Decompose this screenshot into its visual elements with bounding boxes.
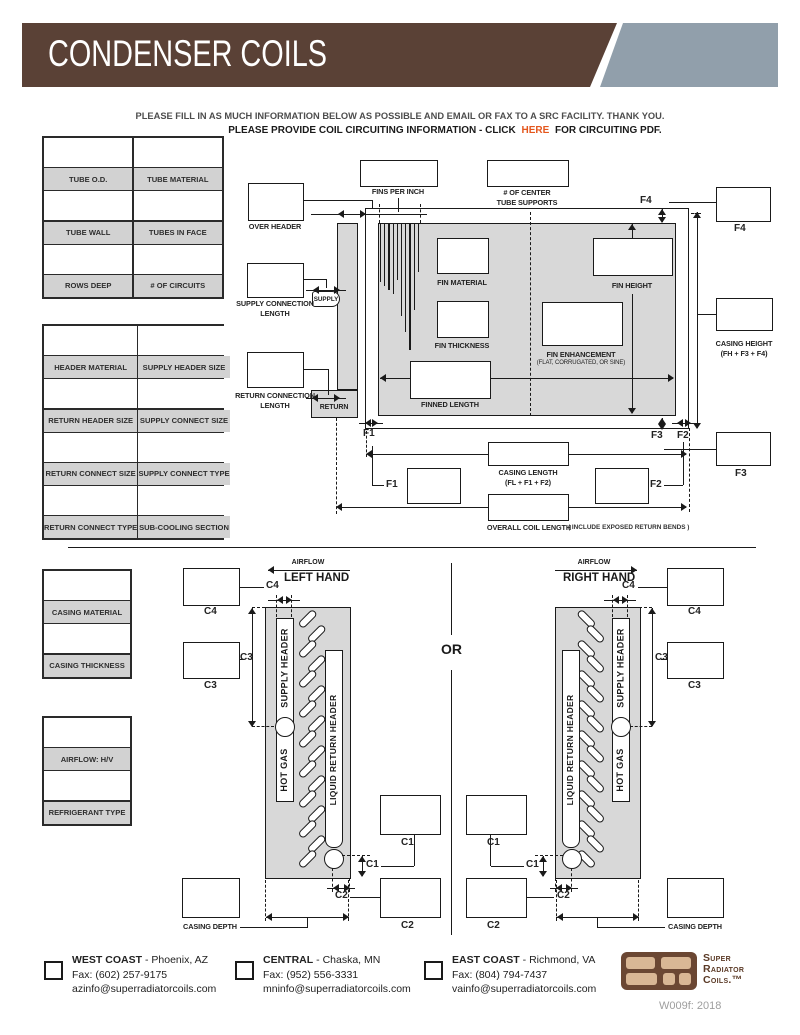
input-casing-material[interactable] bbox=[44, 571, 130, 600]
west-coast-region: WEST COAST bbox=[72, 954, 142, 966]
document-code: W009f: 2018 bbox=[659, 1000, 721, 1012]
input-right-c2[interactable] bbox=[466, 878, 527, 918]
fin-enhancement-sub-label: (FLAT, CORRUGATED, OR SINE) bbox=[537, 360, 625, 366]
tube-mark-icon bbox=[297, 819, 317, 839]
input-fin-enhancement[interactable] bbox=[542, 302, 623, 346]
input-right-c4[interactable] bbox=[667, 568, 724, 606]
input-casing-height[interactable] bbox=[716, 298, 773, 331]
intro-line: PLEASE FILL IN AS MUCH INFORMATION BELOW… bbox=[0, 111, 800, 121]
central-location: CENTRAL- Chaska, MN Fax: (952) 556-3331 … bbox=[263, 953, 411, 997]
center-supports-label-2: TUBE SUPPORTS bbox=[497, 198, 558, 207]
fin-line bbox=[393, 224, 394, 294]
label-return-header-size: RETURN HEADER SIZE bbox=[44, 410, 137, 432]
tube-mark-icon bbox=[585, 684, 605, 704]
f2-dim-label: F2 bbox=[677, 430, 689, 441]
label-return-connect-type: RETURN CONNECT TYPE bbox=[44, 516, 137, 538]
input-tube-material[interactable] bbox=[134, 138, 222, 167]
label-tube-wall: TUBE WALL bbox=[44, 222, 132, 244]
tube-mark-icon bbox=[297, 699, 317, 719]
fin-line bbox=[414, 224, 415, 310]
input-right-c3[interactable] bbox=[667, 642, 724, 679]
casing-height-label-1: CASING HEIGHT bbox=[716, 339, 773, 348]
left-c2-box-label: C2 bbox=[401, 920, 414, 931]
input-supply-connect-type[interactable] bbox=[138, 433, 229, 462]
supply-tag-label: SUPPLY bbox=[314, 296, 339, 303]
label-casing-material: CASING MATERIAL bbox=[44, 601, 130, 623]
input-refrigerant-type[interactable] bbox=[44, 771, 130, 800]
right-c3-dim-label: C3 bbox=[655, 652, 668, 663]
tube-mark-icon bbox=[585, 804, 605, 824]
right-c4-box-label: C4 bbox=[688, 606, 701, 617]
right-c4-dim-label: C4 bbox=[622, 580, 635, 591]
input-f4[interactable] bbox=[716, 187, 771, 222]
input-fin-material[interactable] bbox=[437, 238, 489, 274]
fin-height-label: FIN HEIGHT bbox=[612, 281, 652, 290]
label-sub-cooling-section: SUB-COOLING SECTION bbox=[138, 516, 229, 538]
finned-length-label: FINNED LENGTH bbox=[421, 400, 479, 409]
f2-box-label: F2 bbox=[650, 479, 662, 490]
fin-line bbox=[380, 224, 381, 282]
banner-accent-shape bbox=[600, 23, 778, 87]
right-supply-header-text: SUPPLY HEADER bbox=[616, 608, 626, 729]
central-region: CENTRAL bbox=[263, 954, 313, 966]
input-airflow-hv[interactable] bbox=[44, 718, 130, 747]
label-supply-connect-size: SUPPLY CONNECT SIZE bbox=[138, 410, 229, 432]
fin-line bbox=[397, 224, 398, 280]
input-casing-thickness[interactable] bbox=[44, 624, 130, 653]
left-liquid-return-text: LIQUID RETURN HEADER bbox=[328, 670, 338, 830]
input-casing-length[interactable] bbox=[488, 442, 569, 466]
right-casing-depth-label: CASING DEPTH bbox=[668, 922, 722, 931]
fin-thickness-label: FIN THICKNESS bbox=[435, 341, 490, 350]
right-tube-pattern bbox=[575, 615, 609, 877]
right-c3-box-label: C3 bbox=[688, 680, 701, 691]
left-c1-dim-label: C1 bbox=[366, 859, 379, 870]
central-city: - Chaska, MN bbox=[316, 954, 380, 966]
input-left-casing-depth[interactable] bbox=[182, 878, 240, 918]
input-fins-per-inch[interactable] bbox=[360, 160, 438, 187]
right-c1-box-label: C1 bbox=[487, 837, 500, 848]
fin-line bbox=[388, 224, 389, 290]
fin-line bbox=[384, 224, 385, 286]
input-header-material[interactable] bbox=[44, 326, 137, 355]
input-right-casing-depth[interactable] bbox=[667, 878, 724, 918]
left-return-connection-icon bbox=[324, 849, 344, 869]
west-coast-location: WEST COAST- Phoenix, AZ Fax: (602) 257-9… bbox=[72, 953, 216, 997]
label-airflow-hv: AIRFLOW: H/V bbox=[44, 748, 130, 770]
instruction-prefix: PLEASE PROVIDE COIL CIRCUITING INFORMATI… bbox=[228, 125, 515, 136]
label-num-circuits: # OF CIRCUITS bbox=[134, 275, 222, 297]
input-supply-connection-length[interactable] bbox=[247, 263, 304, 298]
input-fin-thickness[interactable] bbox=[437, 301, 489, 338]
input-fin-height[interactable] bbox=[593, 238, 673, 276]
header-strip bbox=[337, 223, 358, 390]
input-supply-header-size[interactable] bbox=[138, 326, 229, 355]
return-tag-label: RETURN bbox=[320, 404, 349, 411]
label-header-material: HEADER MATERIAL bbox=[44, 356, 137, 378]
input-return-connection-length[interactable] bbox=[247, 352, 304, 388]
input-tubes-in-face[interactable] bbox=[134, 191, 222, 220]
tube-mark-icon bbox=[585, 714, 605, 734]
page-title: CONDENSER COILS bbox=[48, 23, 327, 85]
tube-mark-icon bbox=[297, 759, 317, 779]
east-coast-region: EAST COAST bbox=[452, 954, 520, 966]
center-supports-label-1: # OF CENTER bbox=[503, 188, 550, 197]
tube-mark-icon bbox=[585, 774, 605, 794]
input-left-c4[interactable] bbox=[183, 568, 240, 606]
east-coast-checkbox[interactable] bbox=[424, 961, 443, 980]
input-tube-od[interactable] bbox=[44, 138, 132, 167]
left-c3-box-label: C3 bbox=[204, 680, 217, 691]
left-c2-dim-label: C2 bbox=[335, 890, 348, 901]
west-coast-city: - Phoenix, AZ bbox=[145, 954, 208, 966]
input-return-connect-type[interactable] bbox=[44, 486, 137, 515]
fin-line bbox=[405, 224, 406, 332]
fin-enhancement-label: FIN ENHANCEMENT bbox=[546, 350, 615, 359]
tube-mark-icon bbox=[585, 624, 605, 644]
left-c4-dim-label: C4 bbox=[266, 580, 279, 591]
over-header-label: OVER HEADER bbox=[249, 222, 301, 231]
casing-length-label-1: CASING LENGTH bbox=[498, 468, 557, 477]
right-c1-dim-label: C1 bbox=[526, 859, 539, 870]
tube-mark-icon bbox=[297, 789, 317, 809]
input-left-c3[interactable] bbox=[183, 642, 240, 679]
tube-mark-icon bbox=[297, 669, 317, 689]
casing-height-label-2: (FH + F3 + F4) bbox=[721, 349, 768, 358]
instruction-suffix: FOR CIRCUITING PDF. bbox=[555, 125, 662, 136]
input-right-c1[interactable] bbox=[466, 795, 527, 835]
east-coast-fax: Fax: (804) 794-7437 bbox=[452, 968, 596, 983]
circuiting-pdf-link[interactable]: HERE bbox=[521, 125, 549, 136]
airflow-table: AIRFLOW: H/V REFRIGERANT TYPE bbox=[42, 716, 132, 826]
input-finned-length[interactable] bbox=[410, 361, 491, 399]
west-coast-email[interactable]: azinfo@superradiatorcoils.com bbox=[72, 982, 216, 997]
left-hand-label: LEFT HAND bbox=[284, 572, 349, 584]
tube-mark-icon bbox=[585, 654, 605, 674]
right-liquid-return-text: LIQUID RETURN HEADER bbox=[565, 670, 575, 830]
east-coast-location: EAST COAST- Richmond, VA Fax: (804) 794-… bbox=[452, 953, 596, 997]
east-coast-city: - Richmond, VA bbox=[523, 954, 596, 966]
input-return-header-size[interactable] bbox=[44, 379, 137, 408]
central-fax: Fax: (952) 556-3331 bbox=[263, 968, 411, 983]
input-tube-wall[interactable] bbox=[44, 191, 132, 220]
tube-mark-icon bbox=[297, 729, 317, 749]
input-overall-coil-length[interactable] bbox=[488, 494, 569, 521]
input-f3[interactable] bbox=[716, 432, 771, 466]
label-rows-deep: ROWS DEEP bbox=[44, 275, 132, 297]
logo-wordmark: Super Radiator Coils.™ bbox=[703, 953, 744, 986]
input-left-c2[interactable] bbox=[380, 878, 441, 918]
east-coast-email[interactable]: vainfo@superradiatorcoils.com bbox=[452, 982, 596, 997]
label-refrigerant-type: REFRIGERANT TYPE bbox=[44, 802, 130, 824]
input-supply-connect-size[interactable] bbox=[138, 379, 229, 408]
f4-dim-label: F4 bbox=[640, 195, 652, 206]
logo-word-coils: Coils.™ bbox=[703, 975, 744, 986]
label-casing-thickness: CASING THICKNESS bbox=[44, 655, 130, 677]
tube-mark-icon bbox=[585, 744, 605, 764]
overall-coil-length-label: OVERALL COIL LENGTH bbox=[487, 523, 571, 532]
right-c2-box-label: C2 bbox=[487, 920, 500, 931]
fin-line bbox=[418, 224, 419, 272]
tube-mark-icon bbox=[297, 639, 317, 659]
tube-mark-icon bbox=[585, 834, 605, 854]
condenser-coils-form: CONDENSER COILS PLEASE FILL IN AS MUCH I… bbox=[0, 0, 800, 1035]
f1-dim-label: F1 bbox=[363, 428, 375, 439]
fins-per-inch-label: FINS PER INCH bbox=[372, 187, 424, 196]
input-center-tube-supports[interactable] bbox=[487, 160, 569, 187]
label-tubes-in-face: TUBES IN FACE bbox=[134, 222, 222, 244]
left-c1-box-label: C1 bbox=[401, 837, 414, 848]
title-banner: CONDENSER COILS bbox=[22, 23, 617, 87]
casing-table: CASING MATERIAL CASING THICKNESS bbox=[42, 569, 132, 679]
airflow-label-left: AIRFLOW bbox=[292, 559, 325, 566]
west-coast-fax: Fax: (602) 257-9175 bbox=[72, 968, 216, 983]
section-divider bbox=[68, 547, 756, 548]
left-casing-depth-label: CASING DEPTH bbox=[183, 922, 237, 931]
label-supply-connect-type: SUPPLY CONNECT TYPE bbox=[138, 463, 229, 485]
left-c4-box-label: C4 bbox=[204, 606, 217, 617]
f1-box-label: F1 bbox=[386, 479, 398, 490]
input-return-connect-size[interactable] bbox=[44, 433, 137, 462]
supply-connection-label-2: LENGTH bbox=[260, 309, 289, 318]
right-return-connection-icon bbox=[562, 849, 582, 869]
right-hot-gas-text: HOT GAS bbox=[615, 740, 625, 800]
or-divider-bottom bbox=[451, 670, 452, 935]
f4-box-label: F4 bbox=[734, 223, 746, 234]
label-supply-header-size: SUPPLY HEADER SIZE bbox=[138, 356, 229, 378]
label-return-connect-size: RETURN CONNECT SIZE bbox=[44, 463, 137, 485]
casing-length-label-2: (FL + F1 + F2) bbox=[505, 478, 551, 487]
input-num-circuits[interactable] bbox=[134, 245, 222, 274]
left-supply-header-text: SUPPLY HEADER bbox=[280, 608, 290, 729]
fin-line bbox=[401, 224, 402, 316]
supply-connection-label-1: SUPPLY CONNECTION bbox=[236, 299, 314, 308]
fin-material-label: FIN MATERIAL bbox=[437, 278, 487, 287]
airflow-label-right: AIRFLOW bbox=[578, 559, 611, 566]
input-left-c1[interactable] bbox=[380, 795, 441, 835]
input-sub-cooling-section[interactable] bbox=[138, 486, 229, 515]
return-connection-label-2: LENGTH bbox=[260, 401, 289, 410]
west-coast-checkbox[interactable] bbox=[44, 961, 63, 980]
input-f2[interactable] bbox=[595, 468, 649, 504]
super-radiator-coils-logo-icon bbox=[621, 952, 697, 990]
label-tube-material: TUBE MATERIAL bbox=[134, 168, 222, 190]
f3-box-label: F3 bbox=[735, 468, 747, 479]
left-c3-dim-label: C3 bbox=[240, 652, 253, 663]
left-hot-gas-text: HOT GAS bbox=[279, 740, 289, 800]
circuiting-instruction: PLEASE PROVIDE COIL CIRCUITING INFORMATI… bbox=[100, 125, 790, 136]
airflow-arrow-left-icon bbox=[268, 566, 274, 574]
central-checkbox[interactable] bbox=[235, 961, 254, 980]
header-table: HEADER MATERIAL SUPPLY HEADER SIZE RETUR… bbox=[42, 324, 224, 540]
central-email[interactable]: mninfo@superradiatorcoils.com bbox=[263, 982, 411, 997]
overall-coil-length-note: ( INCLUDE EXPOSED RETURN BENDS ) bbox=[568, 524, 689, 531]
input-over-header[interactable] bbox=[248, 183, 304, 221]
tube-mark-icon bbox=[297, 849, 317, 869]
tube-table: TUBE O.D. TUBE MATERIAL TUBE WALL TUBES … bbox=[42, 136, 224, 299]
or-label: OR bbox=[441, 641, 462, 657]
or-divider-top bbox=[451, 563, 452, 635]
return-connection-label-1: RETURN CONNECTION bbox=[235, 391, 315, 400]
right-c2-dim-label: C2 bbox=[557, 890, 570, 901]
f3-dim-label: F3 bbox=[651, 430, 663, 441]
input-f1[interactable] bbox=[407, 468, 461, 504]
fin-line bbox=[409, 224, 410, 350]
label-tube-od: TUBE O.D. bbox=[44, 168, 132, 190]
input-rows-deep[interactable] bbox=[44, 245, 132, 274]
